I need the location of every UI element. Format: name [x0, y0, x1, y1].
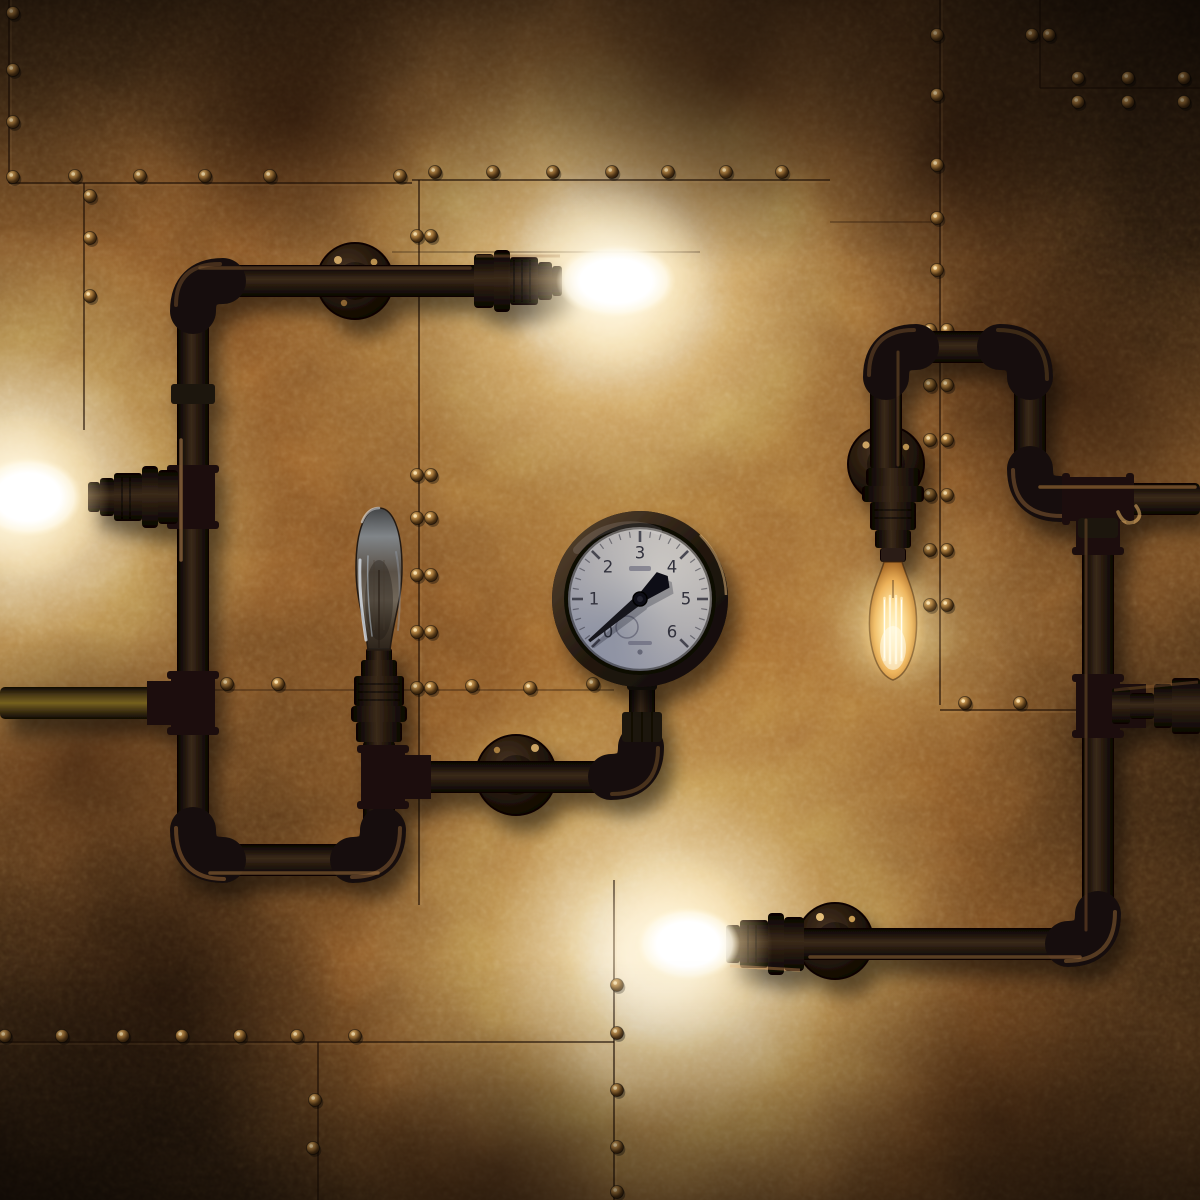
light-bloom-overlay — [0, 0, 1200, 1200]
photo-canvas: 0 1 2 3 4 5 6 — [0, 0, 1200, 1200]
